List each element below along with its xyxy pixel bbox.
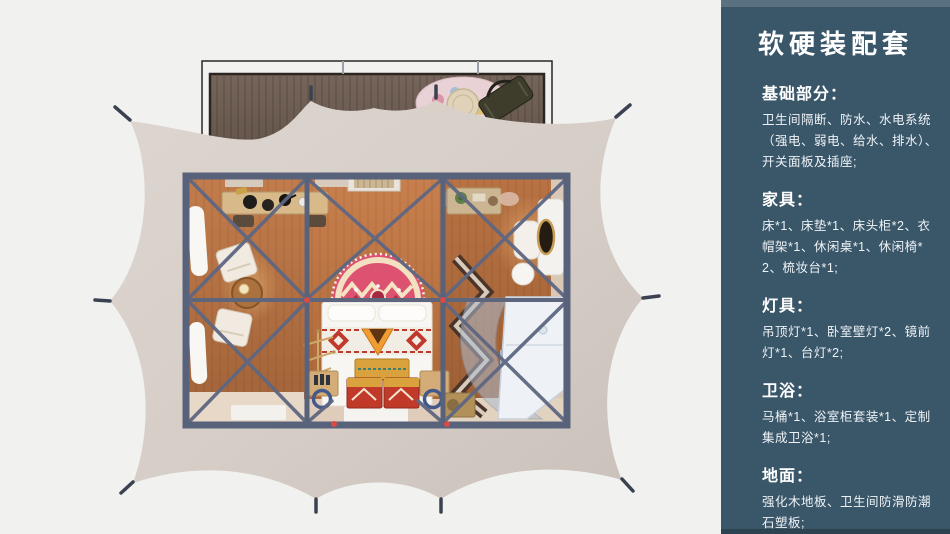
pillow [328, 305, 375, 321]
red-chest [384, 378, 419, 408]
spec-heading-basics: 基础部分： [762, 85, 940, 105]
floorplan-render [0, 0, 721, 534]
spec-body-flooring: 强化木地板、卫生间防滑防潮石塑板; [762, 492, 940, 534]
page: 软硬装配套 基础部分： 卫生间隔断、防水、水电系统（强电、弱电、给水、排水）、开… [0, 0, 950, 534]
pillow [379, 305, 426, 321]
spec-section-lighting: 灯具： 吊顶灯*1、卧室壁灯*2、镜前灯*1、台灯*2; [762, 297, 940, 364]
spec-sidebar: 软硬装配套 基础部分： 卫生间隔断、防水、水电系统（强电、弱电、给水、排水）、开… [721, 0, 950, 534]
spec-section-furniture: 家具： 床*1、床垫*1、床头柜*2、衣帽架*1、休闲桌*1、休闲椅*2、梳妆台… [762, 191, 940, 279]
spec-body-bathroom: 马桶*1、浴室柜套装*1、定制集成卫浴*1; [762, 407, 940, 449]
spec-section-flooring: 地面： 强化木地板、卫生间防滑防潮石塑板; [762, 467, 940, 534]
floorplan-svg [0, 0, 721, 534]
spec-heading-flooring: 地面： [762, 467, 940, 487]
spec-heading-lighting: 灯具： [762, 297, 940, 317]
spec-heading-furniture: 家具： [762, 191, 940, 211]
spec-section-bathroom: 卫浴： 马桶*1、浴室柜套装*1、定制集成卫浴*1; [762, 382, 940, 449]
spec-body-furniture: 床*1、床垫*1、床头柜*2、衣帽架*1、休闲桌*1、休闲椅*2、梳妆台*1; [762, 216, 940, 279]
spec-body-lighting: 吊顶灯*1、卧室壁灯*2、镜前灯*1、台灯*2; [762, 322, 940, 364]
sidebar-title: 软硬装配套 [727, 24, 944, 61]
round-side-table [232, 278, 262, 308]
floor-mat [231, 405, 286, 420]
vanity-stool [512, 263, 534, 285]
gold-chest [355, 359, 409, 380]
room [186, 175, 567, 427]
red-chest [347, 378, 382, 408]
vanity-mirror [538, 220, 554, 254]
spec-section-basics: 基础部分： 卫生间隔断、防水、水电系统（强电、弱电、给水、排水）、开关面板及插座… [762, 85, 940, 173]
spec-heading-bathroom: 卫浴： [762, 382, 940, 402]
leisure-armchair [212, 308, 253, 348]
spec-body-basics: 卫生间隔断、防水、水电系统（强电、弱电、给水、排水）、开关面板及插座; [762, 110, 940, 173]
